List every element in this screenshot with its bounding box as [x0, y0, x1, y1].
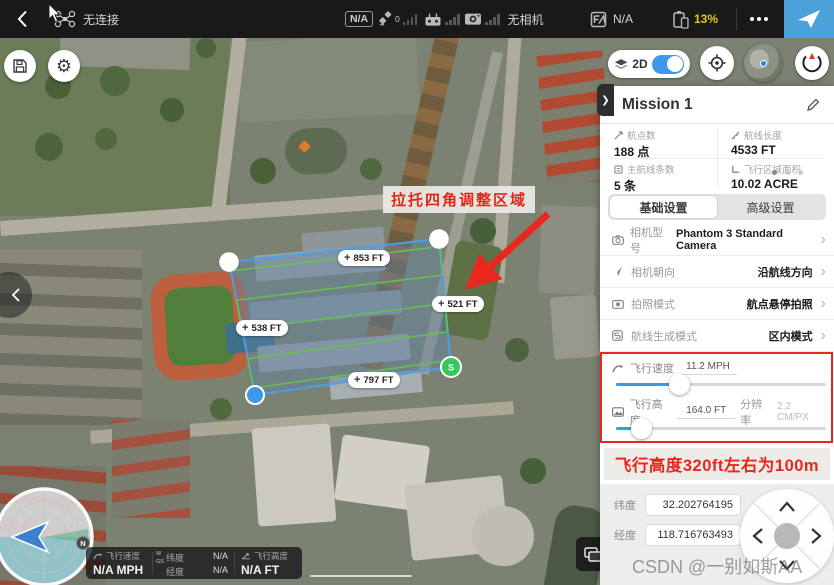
altitude-gauge-icon — [241, 552, 251, 560]
panel-page-dots — [772, 170, 803, 175]
satellite-icon — [378, 11, 394, 27]
camera-link-status: 无相机 — [464, 0, 544, 38]
divider — [736, 8, 737, 30]
stat-route-length: 航线长度 4533 FT — [717, 124, 834, 158]
camera-icon — [612, 235, 624, 245]
map-texture — [112, 420, 190, 518]
app-window: S + 853 FT + 521 FT + 538 FT + 797 FT 拉托… — [0, 0, 834, 585]
map-texture — [95, 128, 117, 150]
compass-reset-button[interactable] — [795, 46, 829, 80]
flight-parameters: 飞行速度 11.2 MPH 飞行高度 164.0 FT 分辨率 2.2 CM/P… — [600, 352, 834, 443]
map-texture — [360, 158, 382, 180]
map-texture — [520, 458, 546, 484]
attitude-compass — [0, 485, 96, 585]
stat-waypoints: 航点数 188 点 — [600, 124, 717, 158]
compass-icon — [801, 52, 823, 74]
edge-length-top[interactable]: + 853 FT — [338, 250, 390, 266]
mission-header: Mission 1 — [600, 86, 834, 124]
flight-mode-value: N/A — [613, 12, 633, 26]
coordinates-section: 纬度 32.202764195 经度 118.716763493 — [600, 484, 834, 585]
mode-badge: N/A — [345, 11, 373, 27]
flight-mode-status: N/A — [590, 0, 633, 38]
chevron-left-icon — [17, 10, 28, 28]
stat-line-count: 主航线条数 5 条 — [600, 158, 717, 192]
battery-percent: 13% — [694, 12, 718, 26]
altitude-note: 飞行高度320ft左右为100m — [604, 448, 830, 480]
length-icon — [731, 131, 740, 140]
longitude-field[interactable]: 118.716763493 — [645, 524, 741, 546]
stat-area: 飞行区域面积 10.02 ACRE — [717, 158, 834, 192]
chevron-right-icon: › — [821, 328, 826, 344]
start-point-handle[interactable] — [441, 357, 461, 377]
settings-tabs: 基础设置 高级设置 — [608, 194, 826, 220]
area-ruler-icon — [731, 165, 740, 174]
edge-length-label: 538 FT — [251, 323, 281, 334]
page-dot[interactable] — [798, 170, 803, 175]
battery-status: 13% — [672, 0, 718, 38]
top-status-bar: 无连接 N/A 0 — [0, 0, 834, 38]
tab-basic-settings[interactable]: 基础设置 — [610, 196, 717, 218]
dpad-center-button[interactable] — [774, 523, 800, 549]
rc-status — [424, 0, 460, 38]
save-icon — [12, 58, 28, 74]
map-texture — [160, 98, 184, 122]
edit-pencil-icon[interactable] — [806, 98, 820, 112]
minimap-button[interactable] — [744, 44, 782, 82]
mission-stats: 航点数 188 点 航线长度 4533 FT 主航线条数 5 条 飞行区域面积 … — [600, 124, 834, 192]
altitude-slider-thumb[interactable] — [631, 418, 652, 439]
wgs-label: WGS — [156, 551, 164, 567]
north-badge: N — [76, 536, 90, 550]
resolution-value: 2.2 CM/PX — [777, 401, 824, 423]
map-texture — [284, 126, 348, 175]
map-texture — [250, 158, 276, 184]
chevron-right-icon: › — [821, 232, 826, 248]
locate-icon — [707, 53, 727, 73]
map-texture — [196, 38, 216, 58]
longitude-label: 经度 — [614, 527, 638, 543]
drone-icon — [54, 10, 76, 28]
speed-slider[interactable] — [616, 383, 826, 386]
mode-badge-wrap: N/A — [345, 0, 373, 38]
map-scale-bar — [310, 575, 412, 577]
connection-status: 无连接 — [83, 11, 119, 28]
map-texture — [505, 338, 529, 362]
speed-value: 11.2 MPH — [679, 361, 737, 375]
mission-panel: ❯ Mission 1 航点数 188 点 航线长度 4533 FT 主航线条数 — [600, 86, 834, 585]
add-waypoint-icon: + — [354, 374, 360, 386]
map-texture — [236, 38, 420, 123]
page-dot[interactable] — [772, 170, 777, 175]
add-waypoint-icon: + — [344, 252, 350, 264]
rc-signal-bars — [445, 14, 460, 25]
speed-arrow-icon — [93, 552, 103, 560]
edge-length-bottom[interactable]: + 797 FT — [348, 372, 400, 388]
battery-icon — [672, 10, 689, 29]
altitude-slider[interactable] — [616, 427, 826, 430]
altitude-image-icon — [612, 407, 625, 417]
latitude-label: 纬度 — [614, 497, 638, 513]
edge-length-label: 853 FT — [353, 253, 383, 264]
telemetry-position: WGS 纬度N/A 经度N/A — [152, 547, 232, 579]
serpentine-mode-icon — [612, 330, 625, 341]
speed-slider-thumb[interactable] — [669, 374, 690, 395]
map-texture — [470, 218, 496, 244]
mission-title: Mission 1 — [622, 96, 806, 114]
map-2d-label: 2D — [632, 57, 647, 71]
chevron-left-icon — [10, 287, 22, 303]
camera-status-text: 无相机 — [508, 11, 544, 28]
page-dot[interactable] — [785, 170, 790, 175]
gps-signal-bars — [403, 14, 418, 25]
lines-icon — [614, 165, 623, 174]
divider — [610, 158, 824, 159]
tab-advanced-settings[interactable]: 高级设置 — [717, 196, 824, 218]
map-texture — [35, 133, 63, 161]
back-button[interactable] — [6, 0, 38, 38]
map-texture — [252, 423, 337, 526]
layers-icon — [614, 58, 628, 71]
map-texture — [550, 294, 600, 359]
telemetry-bar: 飞行速度 N/A MPH WGS 纬度N/A 经度N/A 飞行高度 N/A FT — [86, 547, 302, 579]
edge-length-right[interactable]: + 521 FT — [432, 296, 484, 312]
setting-route-mode[interactable]: 航线生成模式 区内模式 › — [600, 320, 834, 352]
airplane-icon — [797, 9, 821, 29]
corner-handle-topleft[interactable] — [219, 252, 239, 272]
speed-setting-row: 飞行速度 11.2 MPH — [600, 358, 834, 378]
remote-controller-icon — [424, 12, 442, 27]
map-texture — [538, 205, 597, 295]
corner-handle-topright[interactable] — [429, 229, 449, 249]
settings-button[interactable]: ⚙ — [48, 50, 80, 82]
waypoint-icon — [614, 131, 623, 140]
setting-camera-heading[interactable]: 相机朝向 沿航线方向 › — [600, 256, 834, 288]
chevron-right-icon: › — [821, 296, 826, 312]
camera-icon — [612, 299, 625, 309]
camera-signal-bars — [485, 14, 500, 25]
annotation-label: 拉托四角调整区域 — [383, 186, 535, 213]
setting-shoot-mode[interactable]: 拍照模式 航点悬停拍照 › — [600, 288, 834, 320]
clipboard-icon — [590, 10, 607, 28]
map-2d-toggle[interactable] — [652, 55, 684, 74]
gear-icon: ⚙ — [56, 56, 72, 77]
telemetry-speed: 飞行速度 N/A MPH — [93, 547, 151, 579]
telemetry-altitude: 飞行高度 N/A FT — [241, 547, 299, 579]
latitude-field[interactable]: 32.202764195 — [645, 494, 741, 516]
setting-camera-model[interactable]: 相机型号 Phantom 3 Standard Camera › — [600, 224, 834, 256]
save-mission-button[interactable] — [4, 50, 36, 82]
map-texture — [210, 398, 232, 420]
map-mode-pill: 2D — [608, 50, 690, 78]
chevron-right-icon: › — [821, 264, 826, 280]
takeoff-button[interactable] — [784, 0, 834, 38]
nav-arrow-icon — [612, 266, 625, 277]
resolution-label: 分辨率 — [740, 396, 772, 428]
altitude-value: 164.0 FT — [677, 405, 735, 419]
corner-handle-bottomleft[interactable] — [246, 386, 264, 404]
speed-arrow-icon — [612, 363, 625, 373]
panel-collapse-tab[interactable]: ❯ — [597, 84, 614, 116]
add-waypoint-icon: + — [242, 322, 248, 334]
aircraft-status: 无连接 — [54, 0, 119, 38]
locate-button[interactable] — [700, 46, 734, 80]
more-button[interactable] — [742, 0, 776, 38]
map-texture — [100, 66, 130, 96]
camera-icon — [464, 12, 482, 26]
add-waypoint-icon: + — [438, 298, 444, 310]
nudge-dpad — [740, 489, 834, 583]
minimap-position-dot — [760, 60, 767, 67]
gps-status: 0 — [378, 0, 417, 38]
edge-length-label: 521 FT — [447, 299, 477, 310]
edge-length-label: 797 FT — [363, 375, 393, 386]
satellite-count: 0 — [395, 14, 400, 24]
edge-length-left[interactable]: + 538 FT — [236, 320, 288, 336]
